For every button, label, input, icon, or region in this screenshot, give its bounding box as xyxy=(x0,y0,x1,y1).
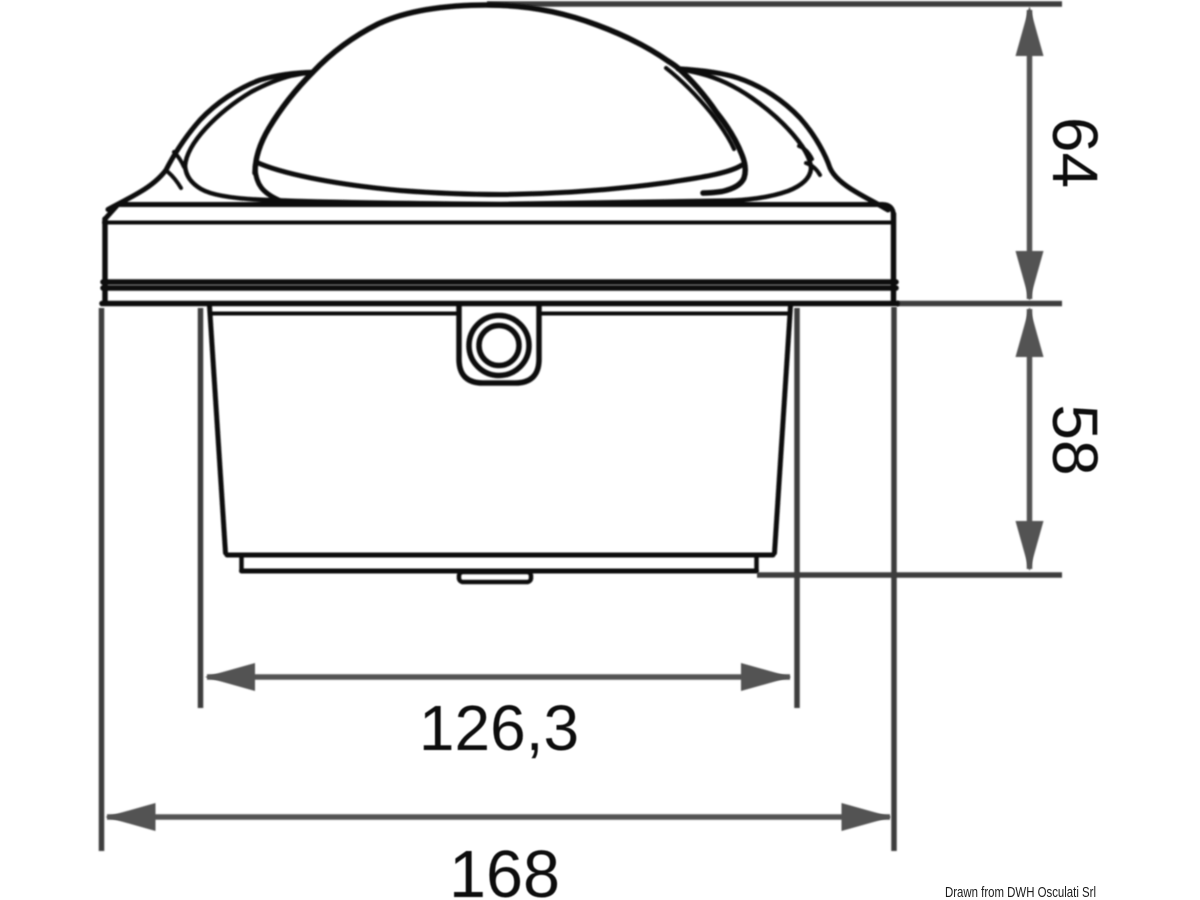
svg-text:168: 168 xyxy=(449,837,560,900)
svg-text:58: 58 xyxy=(1039,404,1111,475)
svg-text:Drawn from DWH Osculati Srl: Drawn from DWH Osculati Srl xyxy=(945,885,1096,900)
svg-text:64: 64 xyxy=(1039,117,1111,188)
svg-text:126,3: 126,3 xyxy=(419,692,579,764)
